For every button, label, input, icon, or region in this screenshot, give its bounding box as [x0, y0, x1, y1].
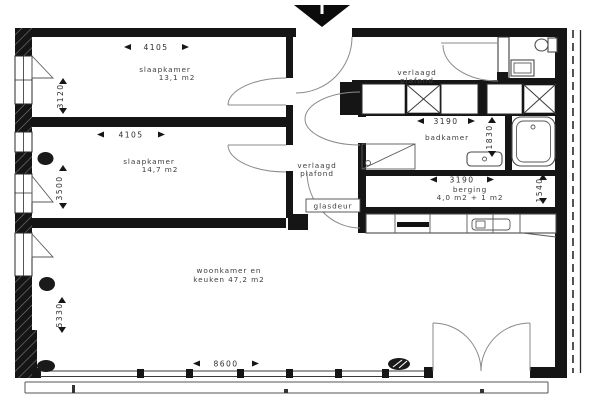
dim-living-depth: 5330 — [55, 303, 64, 328]
wall-left-seg3 — [15, 152, 32, 174]
window-swing-symbol — [32, 234, 53, 257]
dim-arrow-right — [468, 118, 475, 124]
window-mullion — [335, 369, 342, 378]
dim-bedroom2-depth: 3500 — [55, 176, 64, 201]
closet-2 — [441, 84, 478, 114]
window-swing-symbol — [32, 56, 53, 78]
window-mullion — [137, 369, 144, 378]
french-door-swing-right — [481, 323, 530, 371]
wall-right — [555, 28, 567, 378]
shaft-icon-1 — [406, 84, 441, 114]
dim-arrow-up — [59, 78, 67, 84]
washbasin-icon — [467, 152, 502, 166]
french-door-jamb-left — [424, 367, 433, 378]
dim-arrow-left — [97, 132, 104, 138]
entrance-arrow-icon — [294, 5, 350, 27]
wall-left-seg4 — [15, 213, 32, 233]
column-icon — [38, 152, 54, 165]
window-bedroom2-b — [15, 174, 53, 213]
dim-arrow-right — [158, 132, 165, 138]
dim-arrow-down — [59, 108, 67, 114]
cooktop-icon — [397, 222, 429, 227]
wall-storage-bottom — [360, 207, 558, 214]
dim-bathroom-depth: 1830 — [485, 125, 494, 150]
floorplan-page: 4105 3120 4105 3500 5330 8600 3190 1830 … — [0, 0, 600, 400]
shower-icon — [362, 144, 415, 169]
french-doors — [433, 323, 530, 371]
bottom-facade — [25, 323, 556, 393]
wall-toilet-jamb — [497, 72, 508, 81]
shaft-icon-2 — [523, 84, 556, 114]
wall-hall-left-c — [286, 171, 293, 218]
column-icon — [37, 360, 55, 372]
column-icon — [39, 277, 55, 291]
window-mullion — [286, 369, 293, 378]
wall-left-seg2 — [15, 104, 32, 132]
french-door-swing-left — [433, 323, 481, 371]
wall-hall-bottom-jamb — [288, 214, 308, 230]
toilet-icon — [535, 38, 557, 52]
balcony — [25, 382, 548, 393]
party-wall-line — [573, 30, 581, 373]
service-row — [362, 84, 556, 114]
walls — [15, 28, 567, 378]
dim-bedroom1-depth: 3120 — [56, 84, 65, 109]
living-label-line2: keuken 47,2 m2 — [193, 275, 264, 284]
dim-bathroom-width: 3190 — [434, 117, 459, 126]
living-kitchen-region — [32, 228, 556, 370]
glass-door-label: glasdeur — [314, 202, 353, 211]
wall-hall-left-b — [286, 105, 293, 145]
balcony-post — [480, 389, 484, 393]
wall-bottom-right — [530, 367, 556, 378]
dim-storage-width: 3190 — [450, 176, 475, 185]
closet-1 — [362, 84, 406, 114]
balcony-post — [72, 385, 75, 393]
glass-door-tag: glasdeur — [306, 199, 360, 212]
lowered-ceiling-hall-line2: plafond — [300, 169, 334, 178]
window-mullion — [237, 369, 244, 378]
living-label-line1: woonkamer en — [197, 266, 262, 275]
window-mullion — [186, 369, 193, 378]
wall-bedroom2-living — [32, 218, 286, 228]
dim-arrow-left — [193, 361, 200, 367]
dim-bedroom2-width: 4105 — [119, 131, 144, 140]
dim-arrow-up — [488, 117, 496, 123]
wall-top-left — [20, 28, 296, 37]
bedroom1-door-swing — [228, 78, 286, 105]
window-bedroom2-a — [15, 132, 32, 152]
dim-arrow-right — [252, 361, 259, 367]
bathtub-icon — [512, 117, 555, 166]
dim-arrow-left — [430, 177, 437, 183]
dim-arrow-right — [182, 44, 189, 50]
wall-tub-separator — [505, 116, 512, 171]
window-bedroom1 — [15, 56, 53, 104]
wall-toilet-partition — [498, 37, 509, 78]
wall-left-seg1 — [15, 28, 32, 56]
wall-hall-left-a — [286, 37, 293, 78]
kitchen-counter — [366, 214, 556, 237]
dim-arrow-down — [58, 327, 66, 333]
dim-arrow-down — [59, 203, 67, 209]
dim-arrow-up — [58, 297, 66, 303]
toilet-door-swing — [443, 45, 498, 81]
dim-arrow-left — [417, 118, 424, 124]
dim-arrow-right — [487, 177, 494, 183]
dim-arrow-up — [59, 165, 67, 171]
storage-area-label: 4,0 m2 + 1 m2 — [437, 193, 504, 202]
bedroom2-door-swing — [228, 145, 286, 172]
floorplan-drawing: 4105 3120 4105 3500 5330 8600 3190 1830 … — [0, 0, 600, 400]
dim-bedroom1-width: 4105 — [144, 43, 169, 52]
window-living — [15, 233, 53, 276]
window-swing-symbol — [32, 176, 53, 202]
dim-arrow-left — [124, 44, 131, 50]
window-mullion — [382, 369, 389, 378]
toilet-sink-icon — [511, 60, 534, 76]
bedroom1-area-label: 13,1 m2 — [159, 73, 196, 82]
hallway-region — [293, 37, 358, 227]
bathroom-label: badkamer — [425, 133, 469, 142]
bathroom-door-swing-lower — [305, 119, 360, 145]
dim-living-width: 8600 — [214, 360, 239, 369]
balcony-post — [284, 389, 288, 393]
lowered-ceiling-service-line2: plafond — [400, 76, 434, 85]
wall-bedroom-divider — [32, 117, 286, 127]
closet-3 — [487, 84, 523, 114]
wall-top-right — [352, 28, 567, 37]
column-icon-hatched — [388, 358, 410, 370]
bedroom2-area-label: 14,7 m2 — [142, 165, 179, 174]
